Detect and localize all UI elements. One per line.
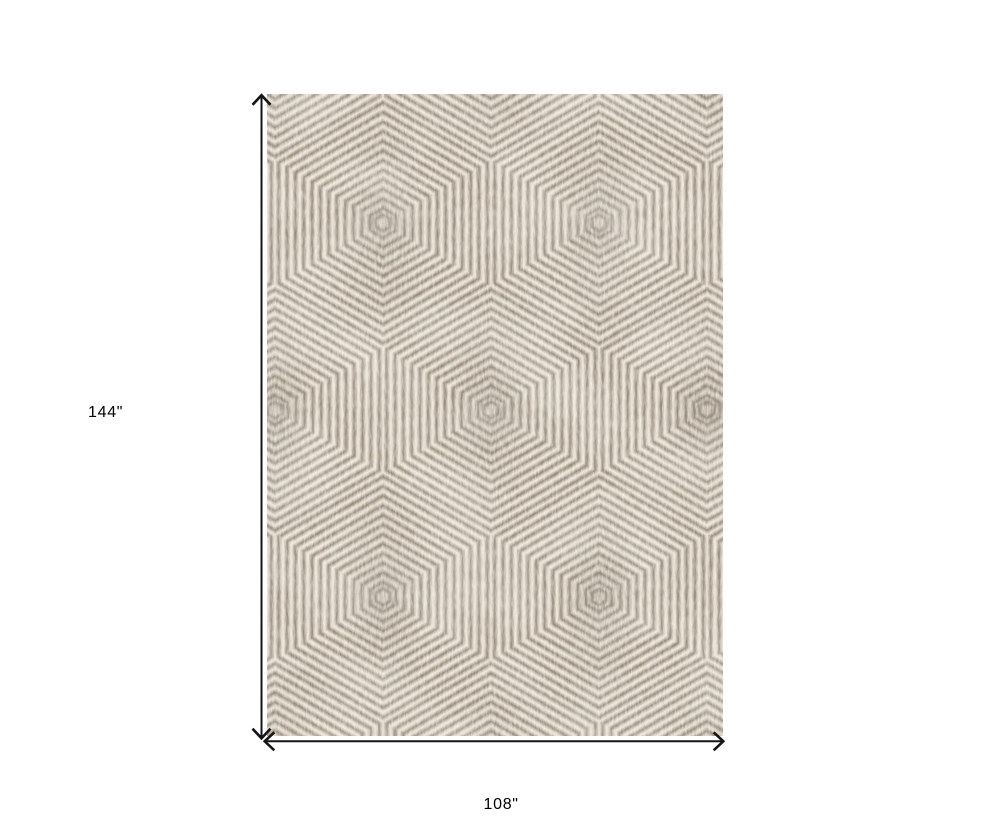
svg-text:144": 144" xyxy=(88,404,123,421)
svg-text:108": 108" xyxy=(484,796,519,813)
